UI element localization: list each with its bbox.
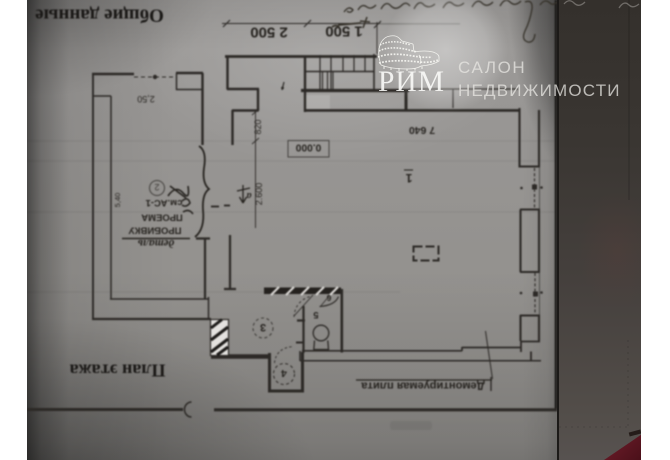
svg-text:7 640: 7 640 xyxy=(409,124,435,136)
svg-text:ПРОЕМА: ПРОЕМА xyxy=(141,212,183,223)
svg-text:План этажа: План этажа xyxy=(70,361,166,381)
svg-text:0.000: 0.000 xyxy=(295,142,321,153)
svg-text:820: 820 xyxy=(253,119,263,134)
svg-text:3: 3 xyxy=(260,321,266,333)
svg-text:2,50: 2,50 xyxy=(137,94,155,104)
svg-text:ПРОБИВКУ: ПРОБИВКУ xyxy=(128,225,181,236)
svg-text:а: а xyxy=(247,190,252,201)
svg-text:2 500: 2 500 xyxy=(250,24,288,41)
svg-text:Общие данные: Общие данные xyxy=(35,5,164,26)
svg-text:5: 5 xyxy=(313,309,319,320)
svg-text:1: 1 xyxy=(405,171,412,185)
svg-text:2: 2 xyxy=(154,182,159,192)
svg-text:6: 6 xyxy=(326,293,331,303)
svg-text:2.600: 2.600 xyxy=(254,183,264,206)
svg-text:5,40: 5,40 xyxy=(113,193,122,208)
svg-text:4: 4 xyxy=(281,367,287,379)
svg-text:см.АС-1: см.АС-1 xyxy=(145,197,183,208)
svg-text:Демонтируемая плита: Демонтируемая плита xyxy=(360,380,484,392)
